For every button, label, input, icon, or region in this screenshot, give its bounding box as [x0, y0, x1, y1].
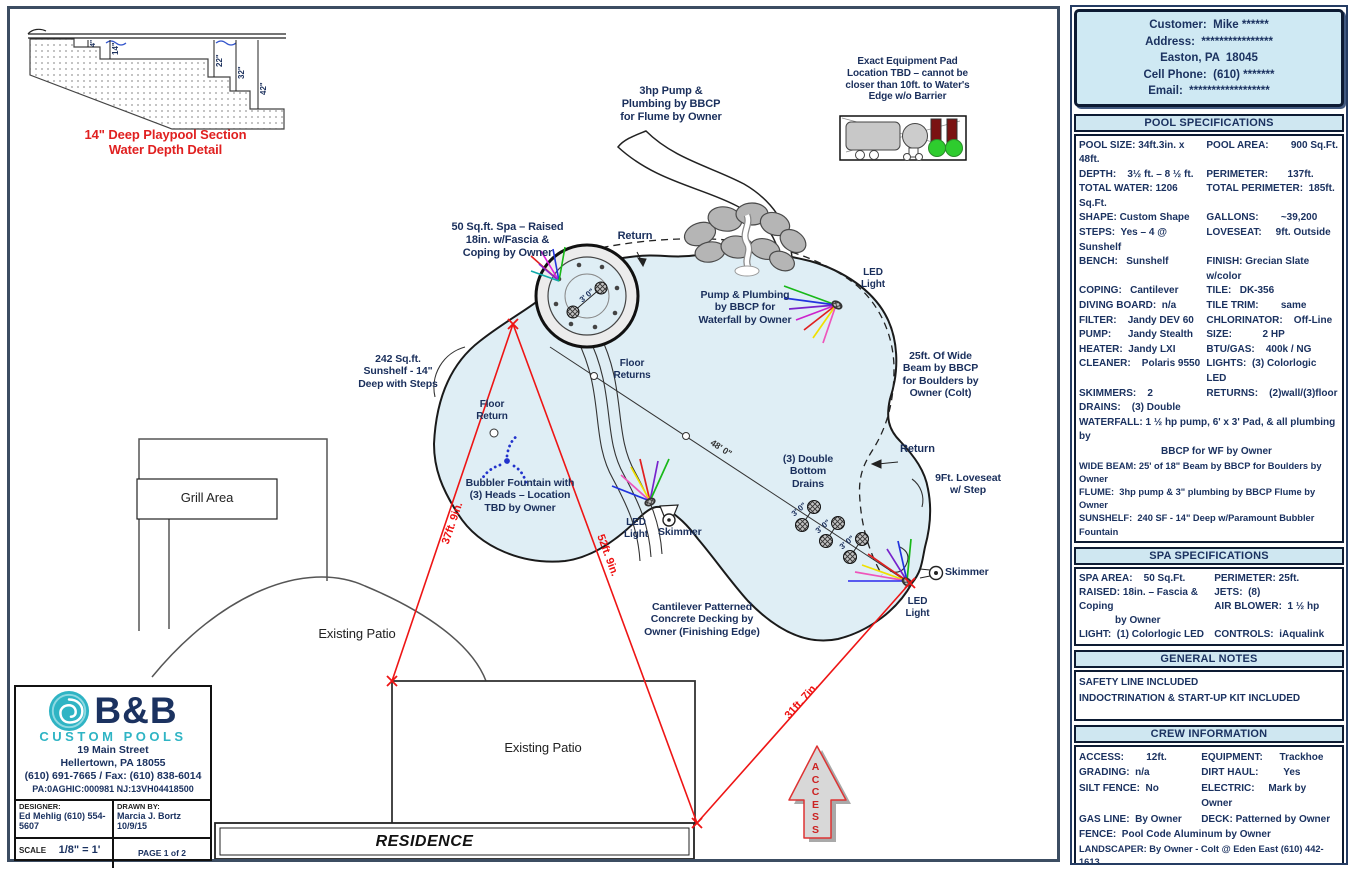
skimmer-label-right: Skimmer — [945, 566, 1007, 578]
spec-panel: Customer: Mike ******Address: **********… — [1070, 5, 1348, 865]
spec-label: RAISED: — [1079, 587, 1120, 598]
spec-label: CHLORINATOR: — [1206, 315, 1282, 326]
spec-label: AIR BLOWER: — [1214, 601, 1282, 612]
spec-cell: PERIMETER: 25ft. — [1214, 572, 1339, 586]
spec-label: FINISH: — [1206, 256, 1242, 267]
spec-value: 25ft. — [1276, 573, 1299, 584]
spec-cell: CONTROLS: iAqualink — [1214, 628, 1339, 642]
company-subtitle: CUSTOM POOLS — [16, 729, 210, 744]
spec-cell: BENCH: Sunshelf — [1079, 255, 1206, 284]
spec-label: PERIMETER: — [1214, 573, 1276, 584]
spec-label: RETURNS: — [1206, 388, 1258, 399]
spec-label: DRAINS: — [1079, 402, 1121, 413]
spec-value: same — [1259, 300, 1307, 311]
section-body: SPA AREA: 50 Sq.Ft.PERIMETER: 25ft.RAISE… — [1074, 567, 1344, 646]
spec-row: POOL SIZE: 34ft.3in. x 48ft.POOL AREA: 9… — [1079, 139, 1339, 168]
title-block: B&B CUSTOM POOLS 19 Main Street Hellerto… — [14, 685, 212, 861]
spec-cell: SPA AREA: 50 Sq.Ft. — [1079, 572, 1214, 586]
section-header: GENERAL NOTES — [1074, 650, 1344, 668]
spec-label: SHAPE: — [1079, 212, 1117, 223]
spec-value: (3) Double — [1121, 402, 1181, 413]
skimmer-label-bottom: Skimmer — [658, 526, 724, 538]
spec-label: INDOCTRINATION & START-UP KIT INCLUDED — [1079, 693, 1300, 704]
spec-row: INDOCTRINATION & START-UP KIT INCLUDED — [1079, 691, 1339, 707]
spec-label: COPING: — [1079, 285, 1122, 296]
spec-label: SKIMMERS: — [1079, 388, 1136, 399]
spec-cell: LANDSCAPER: By Owner - Colt @ Eden East … — [1079, 843, 1339, 865]
drawn-by-label: DRAWN BY: — [117, 802, 207, 811]
spa-note: 50 Sq.ft. Spa – Raised 18in. w/Fascia & … — [440, 221, 575, 260]
spec-cell: GALLONS: ~39,200 — [1206, 211, 1339, 226]
spec-label: POOL SIZE: — [1079, 140, 1136, 151]
spec-label: PUMP: — [1079, 329, 1111, 340]
spec-value: by Owner — [1115, 615, 1161, 626]
spec-value: 2 HP — [1232, 329, 1285, 340]
spec-cell: TOTAL WATER: 1206 Sq.Ft. — [1079, 182, 1206, 211]
spec-label: DEPTH: — [1079, 169, 1116, 180]
spec-cell: TILE TRIM: same — [1206, 299, 1339, 314]
spec-value: 137ft. — [1268, 169, 1314, 180]
spec-label: TOTAL WATER: — [1079, 183, 1153, 194]
spec-row: COPING: CantileverTILE: DK-356 — [1079, 284, 1339, 299]
flume-pump-note: 3hp Pump & Plumbing by BBCP for Flume by… — [596, 85, 746, 124]
grill-area-outline — [139, 439, 486, 681]
spec-cell: PUMP: Jandy Stealth — [1079, 328, 1206, 343]
spec-row: FILTER: Jandy DEV 60CHLORINATOR: Off-Lin… — [1079, 314, 1339, 329]
spec-sections: POOL SPECIFICATIONSPOOL SIZE: 34ft.3in. … — [1074, 114, 1344, 866]
customer-line: Easton, PA 18045 — [1079, 50, 1339, 67]
spec-value: Jandy LXI — [1123, 344, 1176, 355]
spec-value: Jandy Stealth — [1111, 329, 1193, 340]
spec-label: EQUIPMENT: — [1201, 752, 1263, 763]
spec-value: Yes — [1258, 767, 1300, 778]
section-body: POOL SIZE: 34ft.3in. x 48ft.POOL AREA: 9… — [1074, 134, 1344, 543]
spec-row: DEPTH: 3½ ft. – 8 ½ ft.PERIMETER: 137ft. — [1079, 168, 1339, 183]
company-address-line: 19 Main Street — [16, 744, 210, 757]
spec-label: ACCESS: — [1079, 752, 1124, 763]
scale-label: SCALE — [19, 846, 46, 855]
depth-label: 32" — [237, 66, 246, 79]
led-light-label-top-right: LED Light — [853, 267, 893, 291]
spec-label: BENCH: — [1079, 256, 1118, 267]
spec-row: FENCE: Pool Code Aluminum by Owner — [1079, 827, 1339, 843]
spec-value: Custom Shape — [1117, 212, 1190, 223]
spec-cell: LIGHT: (1) Colorlogic LED — [1079, 628, 1214, 642]
spec-label: LIGHTS: — [1206, 358, 1246, 369]
floor-return-fitting — [490, 429, 498, 437]
spec-cell: TILE: DK-356 — [1206, 284, 1339, 299]
spec-label: SAFETY LINE INCLUDED — [1079, 677, 1198, 688]
spec-cell: FINISH: Grecian Slate w/color — [1206, 255, 1339, 284]
company-name: B&B — [94, 690, 177, 732]
section-body: SAFETY LINE INCLUDEDINDOCTRINATION & STA… — [1074, 670, 1344, 721]
waterfall-note: Pump & Plumbing by BBCP for Waterfall by… — [690, 289, 800, 326]
spec-value: (2)wall/(3)floor — [1258, 388, 1337, 399]
spec-label: ELECTRIC: — [1201, 783, 1254, 794]
company-phone-line: (610) 691-7665 / Fax: (610) 838-6014 — [16, 770, 210, 783]
spec-label: STEPS: — [1079, 227, 1115, 238]
water-squiggles — [106, 41, 236, 45]
floor-return-fitting — [591, 373, 598, 380]
spec-cell: WATERFALL: 1 ½ hp pump, 6' x 3' Pad, & a… — [1079, 416, 1339, 460]
page-cell: PAGE 1 of 2 — [114, 839, 210, 868]
spec-value: Sunshelf — [1118, 256, 1169, 267]
spec-row: HEATER: Jandy LXIBTU/GAS: 400k / NG — [1079, 343, 1339, 358]
spec-label: WIDE BEAM: — [1079, 461, 1136, 471]
spec-value: Patterned by Owner — [1233, 814, 1330, 825]
spec-row: SAFETY LINE INCLUDED — [1079, 675, 1339, 691]
spec-cell: DIRT HAUL: Yes — [1201, 765, 1339, 781]
floor-returns-label: Floor Returns — [602, 358, 662, 382]
bottom-drains-note: (3) Double Bottom Drains — [768, 453, 848, 490]
company-address-line: Hellertown, PA 18055 — [16, 757, 210, 770]
led-light-label-bottom-center: LED Light — [615, 517, 657, 541]
spec-cell: LIGHTS: (3) Colorlogic LED — [1206, 357, 1339, 386]
spec-row: SKIMMERS: 2RETURNS: (2)wall/(3)floor — [1079, 387, 1339, 402]
spec-cell: CHLORINATOR: Off-Line — [1206, 314, 1339, 329]
spec-cell: GAS LINE: By Owner — [1079, 812, 1201, 828]
spec-cell: SHAPE: Custom Shape — [1079, 211, 1206, 226]
designer-value: Ed Mehlig (610) 554-5607 — [19, 811, 109, 831]
spec-label: DIRT HAUL: — [1201, 767, 1258, 778]
spec-cell: TOTAL PERIMETER: 185ft. — [1206, 182, 1339, 211]
deck-lines — [28, 29, 286, 38]
spec-value: 9ft. Outside — [1262, 227, 1331, 238]
spec-row: WIDE BEAM: 25' of 18" Beam by BBCP for B… — [1079, 460, 1339, 486]
spec-cell: COPING: Cantilever — [1079, 284, 1206, 299]
spec-value: 400k / NG — [1255, 344, 1312, 355]
drawn-by-value: Marcia J. Bortz 10/9/15 — [117, 811, 207, 831]
spec-value: n/a — [1156, 300, 1176, 311]
spec-value: Cantilever — [1122, 285, 1179, 296]
section-crew: CREW INFORMATIONACCESS: 12ft.EQUIPMENT: … — [1074, 725, 1344, 865]
spec-label: TILE: — [1206, 285, 1231, 296]
spec-label: WATERFALL: — [1079, 417, 1143, 428]
spec-row: PUMP: Jandy StealthSIZE: 2 HP — [1079, 328, 1339, 343]
drawn-by-cell: DRAWN BY: Marcia J. Bortz 10/9/15 — [114, 801, 210, 837]
spec-value: BBCP for WF by Owner — [1161, 446, 1272, 457]
spec-label: TOTAL PERIMETER: — [1206, 183, 1303, 194]
spec-label: SILT FENCE: — [1079, 783, 1140, 794]
spec-row: TOTAL WATER: 1206 Sq.Ft.TOTAL PERIMETER:… — [1079, 182, 1339, 211]
spec-row: SUNSHELF: 240 SF - 14" Deep w/Paramount … — [1079, 512, 1339, 538]
spec-row: GRADING: n/aDIRT HAUL: Yes — [1079, 765, 1339, 781]
spec-label: FENCE: — [1079, 829, 1116, 840]
spec-value: Trackhoe — [1263, 752, 1324, 763]
spec-row: SHAPE: Custom ShapeGALLONS: ~39,200 — [1079, 211, 1339, 226]
spec-cell: ELECTRIC: Mark by Owner — [1201, 781, 1339, 812]
spec-cell: POOL SIZE: 34ft.3in. x 48ft. — [1079, 139, 1206, 168]
playpool-section-detail: 4" 14" 22" 32" 42" — [22, 25, 294, 137]
spec-value: (8) — [1243, 587, 1261, 598]
customer-line: Address: **************** — [1079, 34, 1339, 51]
spec-cell: POOL AREA: 900 Sq.Ft. — [1206, 139, 1339, 168]
spec-label: GRADING: — [1079, 767, 1130, 778]
designer-cell: DESIGNER: Ed Mehlig (610) 554-5607 — [16, 801, 114, 837]
depth-label: 4" — [90, 40, 97, 47]
spec-value: 50 Sq.Ft. — [1133, 573, 1186, 584]
spec-value: Off-Line — [1283, 315, 1332, 326]
spec-cell: DIVING BOARD: n/a — [1079, 299, 1206, 314]
spec-value: Pool Code Aluminum by Owner — [1116, 829, 1271, 840]
section-pool: POOL SPECIFICATIONSPOOL SIZE: 34ft.3in. … — [1074, 114, 1344, 543]
depth-label: 14" — [111, 42, 120, 55]
section-detail-title: 14" Deep Playpool Section Water Depth De… — [58, 127, 273, 158]
spec-value: 900 Sq.Ft. — [1269, 140, 1338, 151]
spec-cell: RAISED: 18in. – Fascia & Copingby Owner — [1079, 586, 1214, 628]
spec-cell: ACCESS: 12ft. — [1079, 750, 1201, 766]
spec-cell: FILTER: Jandy DEV 60 — [1079, 314, 1206, 329]
spec-value: DK-356 — [1231, 285, 1274, 296]
spec-label: POOL AREA: — [1206, 140, 1268, 151]
spec-cell: BTU/GAS: 400k / NG — [1206, 343, 1339, 358]
spec-cell: SUNSHELF: 240 SF - 14" Deep w/Paramount … — [1079, 512, 1339, 538]
access-arrow-label: ACCESS — [809, 761, 822, 836]
site-plan-drawing: 4" 14" 22" 32" 42" 14" Deep Playpool Sec… — [7, 6, 1060, 862]
spec-label: HEATER: — [1079, 344, 1123, 355]
spec-row: WATERFALL: 1 ½ hp pump, 6' x 3' Pad, & a… — [1079, 416, 1339, 460]
section-header: CREW INFORMATION — [1074, 725, 1344, 743]
heater-icon — [846, 122, 900, 150]
spec-value: n/a — [1130, 767, 1150, 778]
spec-cell: DEPTH: 3½ ft. – 8 ½ ft. — [1079, 168, 1206, 183]
spec-cell: HEATER: Jandy LXI — [1079, 343, 1206, 358]
spec-cell: FLUME: 3hp pump & 3" plumbing by BBCP Fl… — [1079, 486, 1339, 512]
residence-label: RESIDENCE — [357, 833, 492, 852]
tank-icon — [929, 140, 946, 157]
spec-row: STEPS: Yes – 4 @ SunshelfLOVESEAT: 9ft. … — [1079, 226, 1339, 255]
spec-row: GAS LINE: By OwnerDECK: Patterned by Own… — [1079, 812, 1339, 828]
spec-label: LANDSCAPER: — [1079, 844, 1147, 854]
spec-cell: SAFETY LINE INCLUDED — [1079, 675, 1339, 691]
bubbler-note: Bubbler Fountain with (3) Heads – Locati… — [450, 477, 590, 514]
spec-label: SIZE: — [1206, 329, 1232, 340]
sunshelf-note: 242 Sq.ft. Sunshelf - 14" Deep with Step… — [348, 353, 448, 390]
spec-cell: INDOCTRINATION & START-UP KIT INCLUDED — [1079, 691, 1339, 707]
spec-value: (1) Colorlogic LED — [1111, 629, 1204, 640]
customer-line: Cell Phone: (610) ******* — [1079, 67, 1339, 84]
loveseat-note: 9Ft. Loveseat w/ Step — [918, 472, 1018, 497]
depth-label: 42" — [259, 82, 268, 95]
spec-value: 2 — [1136, 388, 1153, 399]
scale-value: 1/8" = 1' — [59, 844, 101, 856]
spec-label: FILTER: — [1079, 315, 1117, 326]
spec-label: CLEANER: — [1079, 358, 1131, 369]
wide-beam-note: 25ft. Of Wide Beam by BBCP for Boulders … — [888, 350, 993, 400]
section-header: POOL SPECIFICATIONS — [1074, 114, 1344, 132]
page-number: PAGE 1 of 2 — [117, 848, 207, 858]
skimmer-right — [920, 567, 943, 580]
spec-cell: SIZE: 2 HP — [1206, 328, 1339, 343]
spec-row: DIVING BOARD: n/aTILE TRIM: same — [1079, 299, 1339, 314]
spec-cell: RETURNS: (2)wall/(3)floor — [1206, 387, 1339, 402]
spec-cell: EQUIPMENT: Trackhoe — [1201, 750, 1339, 766]
spec-cell: LOVESEAT: 9ft. Outside — [1206, 226, 1339, 255]
existing-patio-label-2: Existing Patio — [473, 740, 613, 755]
spec-value: By Owner — [1130, 814, 1182, 825]
spec-label: PERIMETER: — [1206, 169, 1268, 180]
spec-label: GAS LINE: — [1079, 814, 1130, 825]
spec-label: DECK: — [1201, 814, 1233, 825]
tank-icon — [946, 140, 963, 157]
spec-cell: SILT FENCE: No — [1079, 781, 1201, 812]
spec-row: CLEANER: Polaris 9550LIGHTS: (3) Colorlo… — [1079, 357, 1339, 386]
spec-value: Polaris 9550 — [1131, 358, 1201, 369]
return-label-top: Return — [610, 230, 660, 243]
spec-row: RAISED: 18in. – Fascia & Copingby OwnerJ… — [1079, 586, 1339, 628]
deck-note: Cantilever Patterned Concrete Decking by… — [632, 601, 772, 638]
spec-row: DRAINS: (3) Double — [1079, 401, 1339, 416]
scale-cell: SCALE 1/8" = 1' — [16, 839, 114, 868]
customer-line: Customer: Mike ****** — [1079, 17, 1339, 34]
return-label-right: Return — [900, 443, 952, 456]
depth-label: 22" — [215, 54, 224, 67]
spec-cell: WIDE BEAM: 25' of 18" Beam by BBCP for B… — [1079, 460, 1339, 486]
ground-section — [30, 39, 284, 129]
spec-value: 185ft. — [1303, 183, 1335, 194]
customer-info-box: Customer: Mike ******Address: **********… — [1074, 9, 1344, 107]
spec-label: SUNSHELF: — [1079, 513, 1132, 523]
spec-value: iAqualink — [1274, 629, 1325, 640]
grill-area-label: Grill Area — [142, 490, 272, 505]
existing-patio-label-1: Existing Patio — [298, 626, 416, 641]
spec-row: SILT FENCE: NoELECTRIC: Mark by Owner — [1079, 781, 1339, 812]
spec-cell: DECK: Patterned by Owner — [1201, 812, 1339, 828]
spec-label: JETS: — [1214, 587, 1242, 598]
spec-cell: CLEANER: Polaris 9550 — [1079, 357, 1206, 386]
spec-label: FLUME: — [1079, 487, 1114, 497]
spec-value: No — [1140, 783, 1159, 794]
spec-label: BTU/GAS: — [1206, 344, 1254, 355]
spec-row: LIGHT: (1) Colorlogic LEDCONTROLS: iAqua… — [1079, 628, 1339, 642]
spec-value: Jandy DEV 60 — [1117, 315, 1194, 326]
spec-cell: FENCE: Pool Code Aluminum by Owner — [1079, 827, 1339, 843]
section-spa: SPA SPECIFICATIONSSPA AREA: 50 Sq.Ft.PER… — [1074, 547, 1344, 646]
customer-line: Email: ****************** — [1079, 83, 1339, 100]
spec-value: 1 ½ hp — [1282, 601, 1319, 612]
led-light-label-bottom-right: LED Light — [895, 596, 940, 620]
spec-row: SPA AREA: 50 Sq.Ft.PERIMETER: 25ft. — [1079, 572, 1339, 586]
bb-swirl-logo-icon — [48, 690, 90, 732]
section-body: ACCESS: 12ft.EQUIPMENT: TrackhoeGRADING:… — [1074, 745, 1344, 865]
spec-value: 3hp pump & 3" plumbing by BBCP Flume by … — [1079, 487, 1318, 510]
section-gn: GENERAL NOTESSAFETY LINE INCLUDEDINDOCTR… — [1074, 650, 1344, 721]
spec-label: SPA AREA: — [1079, 573, 1133, 584]
spec-row: LANDSCAPER: By Owner - Colt @ Eden East … — [1079, 843, 1339, 865]
spec-value: 3½ ft. – 8 ½ ft. — [1116, 169, 1193, 180]
designer-label: DESIGNER: — [19, 802, 109, 811]
spec-row: FLUME: 3hp pump & 3" plumbing by BBCP Fl… — [1079, 486, 1339, 512]
spec-row: BENCH: SunshelfFINISH: Grecian Slate w/c… — [1079, 255, 1339, 284]
section-header: SPA SPECIFICATIONS — [1074, 547, 1344, 565]
spec-cell: STEPS: Yes – 4 @ Sunshelf — [1079, 226, 1206, 255]
spec-cell: GRADING: n/a — [1079, 765, 1201, 781]
spec-label: LOVESEAT: — [1206, 227, 1261, 238]
spec-value: ~39,200 — [1259, 212, 1318, 223]
spec-label: LIGHT: — [1079, 629, 1111, 640]
spec-row: ACCESS: 12ft.EQUIPMENT: Trackhoe — [1079, 750, 1339, 766]
filter-icon — [903, 124, 928, 149]
spec-label: CONTROLS: — [1214, 629, 1273, 640]
floor-return-label: Floor Return — [462, 399, 522, 423]
equipment-pad-icon — [840, 116, 966, 161]
spec-label: DIVING BOARD: — [1079, 300, 1156, 311]
spec-cell: SKIMMERS: 2 — [1079, 387, 1206, 402]
floor-return-fitting — [683, 433, 690, 440]
spec-value: 12ft. — [1124, 752, 1167, 763]
spec-cell: DRAINS: (3) Double — [1079, 401, 1339, 416]
spec-label: GALLONS: — [1206, 212, 1258, 223]
company-license-line: PA:0AGHIC:000981 NJ:13VH04418500 — [16, 783, 210, 796]
equipment-pad-note: Exact Equipment Pad Location TBD – canno… — [830, 56, 985, 103]
spec-cell: JETS: (8)AIR BLOWER: 1 ½ hp — [1214, 586, 1339, 628]
spec-cell: PERIMETER: 137ft. — [1206, 168, 1339, 183]
spec-label: TILE TRIM: — [1206, 300, 1258, 311]
